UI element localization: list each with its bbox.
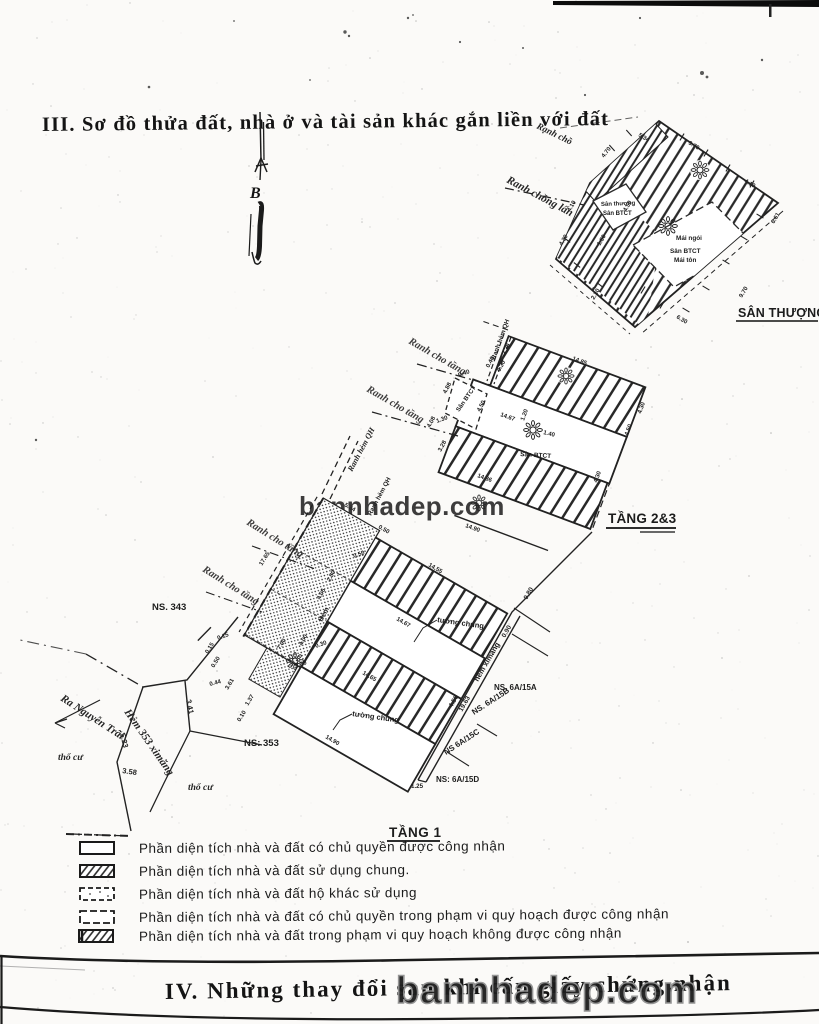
svg-text:SÂN THƯỢNG: SÂN THƯỢNG xyxy=(738,305,819,320)
svg-text:Phần diện tích nhà và đất có c: Phần diện tích nhà và đất có chủ quyền đ… xyxy=(139,838,505,856)
svg-text:Phần diện tích nhà và đất sử d: Phần diện tích nhà và đất sử dụng chung. xyxy=(139,862,410,879)
svg-text:1.25: 1.25 xyxy=(411,783,424,790)
svg-text:bannhadep.com: bannhadep.com xyxy=(396,970,698,1012)
svg-text:Mái ngói: Mái ngói xyxy=(676,235,702,242)
svg-text:NS: 353: NS: 353 xyxy=(244,738,279,749)
svg-text:TẦNG 1: TẦNG 1 xyxy=(389,825,442,840)
svg-text:Mái tôn: Mái tôn xyxy=(674,257,696,264)
svg-text:NS. 343: NS. 343 xyxy=(152,602,186,613)
svg-text:Sân BTCT: Sân BTCT xyxy=(670,248,701,255)
svg-text:thổ cư: thổ cư xyxy=(58,752,84,763)
svg-text:TẦNG 2&3: TẦNG 2&3 xyxy=(608,511,677,526)
svg-text:B: B xyxy=(249,185,261,202)
svg-text:thổ cư: thổ cư xyxy=(188,782,214,793)
svg-text:NS: 6A/15D: NS: 6A/15D xyxy=(436,775,479,784)
svg-text:Phần diện tích nhà và đất hộ k: Phần diện tích nhà và đất hộ khác sử dụn… xyxy=(139,885,417,902)
